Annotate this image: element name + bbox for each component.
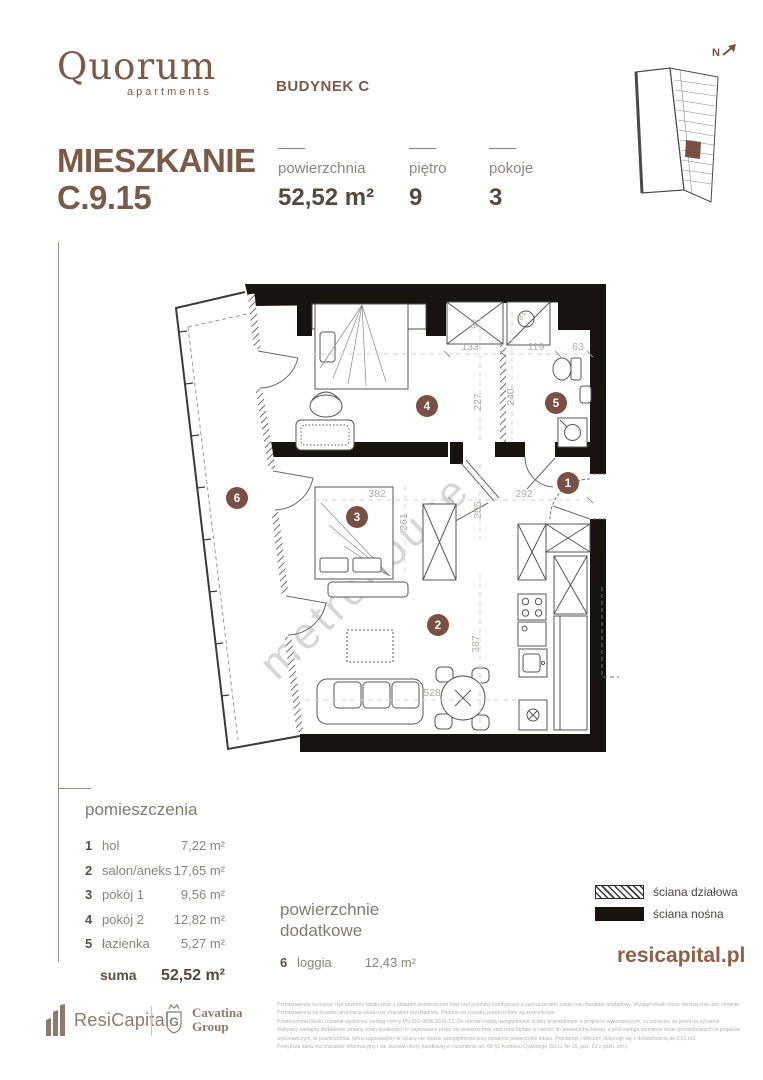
dim-205: 205 [472, 501, 484, 519]
dim-528: 528 [423, 687, 441, 699]
dim-240: 240 [505, 388, 517, 406]
svg-text:6: 6 [234, 493, 240, 505]
fridge-icon [554, 556, 587, 614]
chair-icon [310, 392, 342, 417]
title-line1: MIESZKANIE [57, 142, 256, 179]
apartment-card: Quorum apartments BUDYNEK C MIESZKANIE C… [0, 0, 763, 1080]
site-outline [636, 68, 718, 202]
sink-icon [519, 649, 547, 677]
room-row: 5 łazienka 5,27 m² [85, 936, 225, 951]
stat-rooms: pokoje 3 [489, 148, 533, 212]
title-line2: C.9.15 [57, 179, 256, 216]
cavatina-monogram: G [169, 1015, 178, 1029]
badge-loggia: 6 [226, 487, 248, 509]
room-row: 1 hol 7,22 m² [85, 838, 225, 853]
dim-119: 119 [528, 341, 545, 353]
dim-387: 387 [470, 635, 482, 653]
quorum-logo: Quorum apartments [57, 48, 216, 98]
additional-row: 6 loggia 12,43 m² [280, 955, 416, 970]
badge-pokoj1: 3 [346, 506, 368, 528]
legend-partition: ściana działowa [595, 885, 738, 899]
sum-row: suma 52,52 m² [100, 967, 225, 985]
kitchen-icons [518, 524, 590, 730]
room-list-heading: pomieszczenia [85, 800, 225, 820]
room-row: 2 salon/aneks 17,65 m² [85, 863, 225, 878]
stat-rule [489, 148, 516, 149]
dim-90: 90 [469, 319, 479, 329]
website-link[interactable]: resicapital.pl [617, 944, 745, 968]
stat-floor: piętro 9 [409, 148, 447, 212]
balcony-ticks [179, 331, 229, 696]
stat-floor-label: piętro [409, 160, 447, 177]
stat-area: powierzchnia 52,52 m² [278, 148, 374, 212]
svg-text:2: 2 [435, 620, 441, 632]
sofa-icon [317, 679, 423, 724]
logo-wordmark: Quorum [57, 48, 216, 86]
badge-salon: 2 [427, 614, 449, 636]
stat-rooms-value: 3 [489, 184, 533, 212]
badge-pokoj2: 4 [416, 395, 438, 417]
room-row: 3 pokój 1 9,56 m² [85, 887, 225, 902]
additional-heading: powierzchnie dodatkowe [280, 899, 416, 941]
stat-rooms-label: pokoje [489, 160, 533, 177]
legend-bearing: ściana nośna [595, 907, 738, 921]
cavatina-shield-icon: G [162, 1002, 186, 1038]
sideboard-icon [328, 582, 408, 597]
side-rule-tick [58, 788, 91, 789]
toilet-icon [553, 358, 581, 380]
footer-divider [151, 1006, 152, 1036]
room-list: pomieszczenia 1 hol 7,22 m² 2 salon/anek… [85, 800, 225, 985]
badge-hol: 1 [557, 472, 579, 494]
svg-text:1: 1 [565, 478, 572, 490]
stat-rule [409, 148, 436, 149]
svg-text:4: 4 [424, 401, 431, 413]
stat-area-label: powierzchnia [278, 160, 374, 177]
resicapital-bars-icon [46, 1004, 66, 1036]
side-rule [58, 242, 59, 962]
dim-133: 133 [461, 341, 479, 353]
washing-machine-icon [558, 418, 587, 447]
stat-area-value: 52,52 m² [278, 184, 374, 212]
bed-icon [315, 304, 408, 389]
north-label: N [712, 47, 720, 59]
building-label: BUDYNEK C [276, 78, 370, 95]
legal-disclaimer: Przedstawiony na karcie rzut poziomy lok… [277, 1001, 763, 1051]
shower-icon [507, 302, 550, 345]
north-indicator: N [712, 44, 736, 59]
stat-rule [278, 148, 305, 149]
svg-text:3: 3 [354, 512, 360, 524]
wardrobe2-icon [423, 504, 456, 580]
badge-lazienka: 5 [545, 392, 567, 414]
highlighted-unit [685, 140, 701, 159]
coffee-table-icon [347, 630, 393, 662]
building-locator-map: N [628, 40, 758, 208]
room-row: 4 pokój 2 12,82 m² [85, 912, 225, 927]
stat-floor-value: 9 [409, 184, 447, 212]
floor-plan: metrohouse [150, 272, 620, 768]
dim-63: 63 [572, 341, 584, 353]
washbasin-icon [580, 386, 591, 403]
bearing-wall-swatch [595, 907, 644, 921]
partition-wall-swatch [595, 885, 644, 899]
bed2-icon [315, 487, 393, 579]
page-title: MIESZKANIE C.9.15 [57, 142, 256, 216]
additional-areas: powierzchnie dodatkowe 6 loggia 12,43 m² [280, 899, 416, 980]
wall-legend: ściana działowa ściana nośna [595, 885, 738, 929]
cavatina-wordmark: Cavatina Group [192, 1006, 243, 1034]
stove-icon [518, 594, 546, 620]
dim-382: 382 [368, 488, 386, 500]
furniture [296, 302, 591, 730]
cavatina-logo: G Cavatina Group [162, 1002, 243, 1038]
dining-table-icon [435, 667, 489, 730]
dim-261: 261 [398, 513, 410, 531]
svg-text:5: 5 [553, 398, 560, 410]
dim-227: 227 [472, 393, 484, 411]
dim-292: 292 [515, 488, 533, 500]
